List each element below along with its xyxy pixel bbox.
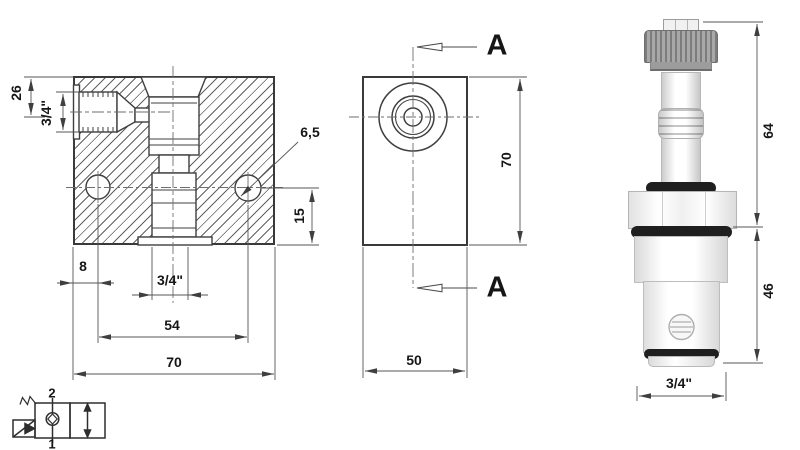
spring-icon xyxy=(20,397,36,405)
dim-70-mid-label: 70 xyxy=(499,152,513,168)
cavity-lower-bore xyxy=(152,173,196,237)
dim-34-bottom-label: 3/4" xyxy=(157,273,183,287)
section-arrow-top-head xyxy=(417,43,442,51)
dim-50-label: 50 xyxy=(406,353,422,367)
dim-6-5-label: 6,5 xyxy=(300,125,319,139)
symbol-port-2-label: 2 xyxy=(48,387,55,400)
valve-screw-slot xyxy=(669,315,694,340)
cavity-top-flange xyxy=(141,77,206,97)
valve-dimensions xyxy=(637,22,763,401)
symbol-port-1-label: 1 xyxy=(48,438,55,450)
seat-valve-poppet xyxy=(48,414,57,424)
dim-70-left-label: 70 xyxy=(166,355,182,369)
dim-54-label: 54 xyxy=(164,318,180,332)
dim-8-label: 8 xyxy=(79,259,87,273)
flow-arrow-head-up xyxy=(85,404,91,411)
top-view-block xyxy=(363,77,467,245)
dim-46-label: 46 xyxy=(761,283,775,299)
flow-arrow-head-down xyxy=(85,430,91,437)
dim-15-label: 15 xyxy=(292,208,306,224)
drawing-canvas: 26 3/4" 6,5 15 8 3/4" 54 70 A A 70 50 64… xyxy=(0,0,800,450)
middle-view xyxy=(349,43,527,378)
section-label-a-top: A xyxy=(487,32,508,61)
section-arrow-bottom-head xyxy=(417,284,442,292)
dim-64-label: 64 xyxy=(761,123,775,139)
hydraulic-symbol xyxy=(13,397,105,444)
cavity-neck xyxy=(159,155,189,173)
section-label-a-bottom: A xyxy=(487,274,508,303)
dim-34-valve-label: 3/4" xyxy=(666,376,692,390)
dim-26-label: 26 xyxy=(9,85,23,101)
cavity-upper-bore xyxy=(149,97,199,155)
left-view-cavity xyxy=(74,77,262,245)
cavity-bottom-flange xyxy=(138,237,212,245)
dim-34-side-label: 3/4" xyxy=(39,100,53,126)
